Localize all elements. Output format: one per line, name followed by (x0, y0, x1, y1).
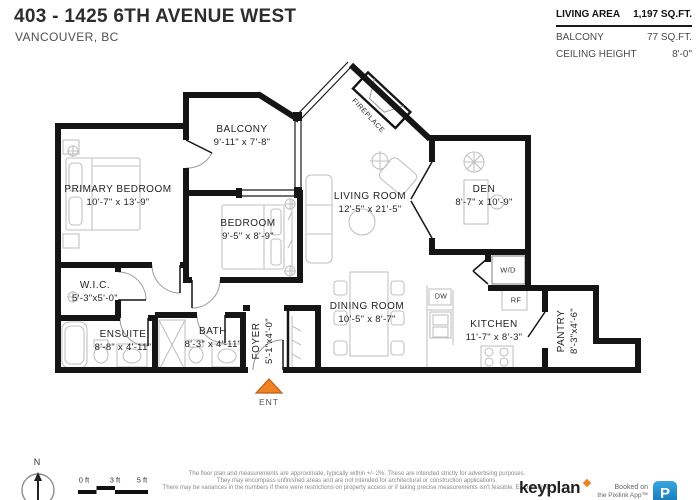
scale-bar-icon (70, 484, 160, 496)
sofa-icon (306, 175, 332, 263)
room-label-primary-bedroom: PRIMARY BEDROOM 10'-7" x 13'-9" (64, 184, 171, 208)
room-label-foyer: FOYER 5'-1"x4'-0" (251, 318, 275, 364)
north-label: N (34, 457, 41, 467)
room-label-bath: BATH 8'-3" x 4'-11" (185, 326, 242, 350)
room-label-living-room: LIVING ROOM 12'-5" x 21'-5" (334, 191, 406, 215)
stove-icon (481, 346, 513, 368)
floorplan-drawing (0, 0, 700, 500)
fireplace-icon (353, 72, 410, 128)
bedroom-closet-icon (288, 200, 292, 276)
booked-on-text: Booked on the Pixilink App™ (578, 484, 648, 500)
fridge-label: RF (511, 296, 522, 305)
plant-icon (464, 152, 484, 172)
walls (55, 65, 638, 373)
room-label-bedroom: BEDROOM 9'-5" x 8'-9" (220, 218, 275, 242)
entry-marker-icon (256, 379, 282, 393)
floorplan-page: 403 - 1425 6TH AVENUE WEST VANCOUVER, BC… (0, 0, 700, 500)
entry-label: ENT (259, 397, 279, 407)
room-label-pantry: PANTRY 8'-3"x4'-6" (556, 308, 580, 354)
room-label-wic: W.I.C. 5'-3"x5'-0" (72, 280, 118, 304)
room-label-den: DEN 8'-7" x 10'-9" (455, 184, 512, 208)
coat-closet-icon (292, 316, 301, 368)
room-label-balcony: BALCONY 9'-11" x 7'-8" (214, 124, 271, 148)
room-label-dining-room: DINING ROOM 10'-5" x 8'-7" (330, 301, 404, 325)
pixilink-app-icon: P (653, 481, 677, 500)
keyplan-logo: keyplan (519, 478, 580, 498)
room-label-kitchen: KITCHEN 11'-7" x 8'-3" (466, 319, 523, 343)
room-label-ensuite: ENSUITE 8'-8" x 4'-11" (95, 329, 152, 353)
dishwasher-label: DW (435, 294, 447, 301)
disclaimer-text: The floor plan and measurements are appr… (162, 471, 552, 492)
washer-dryer-label: W/D (500, 266, 515, 275)
compass-icon (18, 468, 64, 500)
